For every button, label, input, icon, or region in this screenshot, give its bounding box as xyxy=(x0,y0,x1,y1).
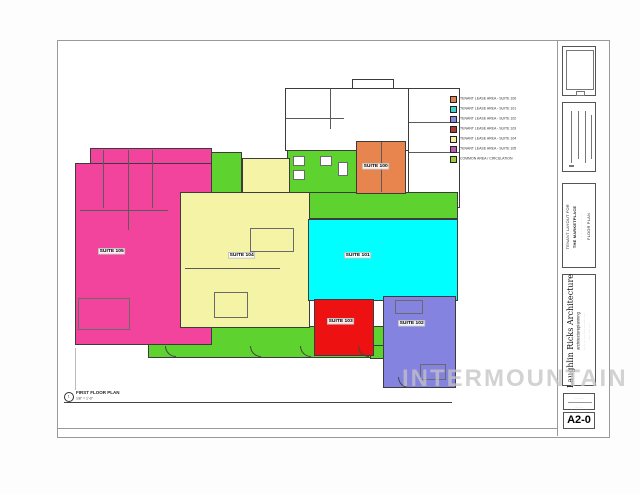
screenshot-root: SUITE 100 SUITE 101 SUITE 102 SUITE 103 … xyxy=(0,0,640,494)
restroom-fixture xyxy=(293,170,305,180)
firm-tagline: architectureplanning xyxy=(577,312,581,350)
rotated-text-line xyxy=(578,111,579,159)
drawing-title: FIRST FLOOR PLAN xyxy=(76,391,120,396)
consultant-info-box xyxy=(562,102,596,172)
legend-row: TENANT LEASE AREA - SUITE 104 xyxy=(450,134,555,144)
legend-label: COMMON AREA / CIRCULATION xyxy=(460,157,513,160)
legend-swatch-suite-100 xyxy=(450,96,457,103)
wall-line xyxy=(250,228,294,252)
job-info-line-1: ······ · ·· xyxy=(572,397,587,400)
legend-row: TENANT LEASE AREA - SUITE 101 xyxy=(450,104,555,114)
project-line-4: FLOOR PLAN xyxy=(587,213,592,240)
wall-line xyxy=(286,118,344,119)
project-line-2: THE MARKETPLACE xyxy=(573,205,578,247)
wall-line xyxy=(80,210,168,211)
legend-label: TENANT LEASE AREA - SUITE 104 xyxy=(460,137,516,140)
legend-label: TENANT LEASE AREA - SUITE 102 xyxy=(460,117,516,120)
drawing-scale: 1/8" = 1'-0" xyxy=(76,397,93,400)
project-title-rotated: TENANT LAYOUT FOR THE MARKETPLACE · · · … xyxy=(563,184,595,269)
rotated-text-line xyxy=(591,115,592,159)
drawing-title-underline xyxy=(64,402,452,403)
firm-phone: ····· ····· ····· xyxy=(588,323,591,340)
lease-line xyxy=(75,348,76,390)
wall-line xyxy=(214,292,248,318)
legend-swatch-suite-102 xyxy=(450,116,457,123)
legend-label: TENANT LEASE AREA - SUITE 100 xyxy=(460,97,516,100)
suite-103-label: SUITE 103 xyxy=(327,318,354,325)
legend-label: TENANT LEASE AREA - SUITE 105 xyxy=(460,147,516,150)
legend-swatch-suite-103 xyxy=(450,126,457,133)
rotated-text-mark xyxy=(569,165,574,167)
job-info-line-2: ···· ··· xyxy=(572,406,587,409)
wall-line xyxy=(78,298,130,330)
suite-102-label: SUITE 102 xyxy=(398,320,425,327)
project-title-box: TENANT LAYOUT FOR THE MARKETPLACE · · · … xyxy=(562,183,596,268)
job-info-divider xyxy=(568,402,592,403)
suite-105-label: SUITE 105 xyxy=(98,248,125,255)
sheet-number: A2-0 xyxy=(564,413,594,428)
seal-inner-outline xyxy=(566,50,594,90)
legend-swatch-suite-105 xyxy=(450,146,457,153)
project-line-3: · · · · · · · · · · xyxy=(580,213,585,240)
common-area-band xyxy=(305,192,458,219)
legend-label: TENANT LEASE AREA - SUITE 103 xyxy=(460,127,516,130)
floor-plan: SUITE 100 SUITE 101 SUITE 102 SUITE 103 … xyxy=(0,0,640,494)
legend-row: TENANT LEASE AREA - SUITE 103 xyxy=(450,124,555,134)
legend-row: COMMON AREA / CIRCULATION xyxy=(450,154,555,164)
restroom-fixture xyxy=(320,156,332,166)
rotated-text-line xyxy=(585,111,586,163)
drawing-number: 1 xyxy=(68,395,70,399)
watermark-text: INTERMOUNTAIN xyxy=(402,365,628,393)
legend-row: TENANT LEASE AREA - SUITE 102 xyxy=(450,114,555,124)
project-line-1: TENANT LAYOUT FOR xyxy=(566,204,571,249)
legend-swatch-suite-104 xyxy=(450,136,457,143)
wall-line xyxy=(128,150,129,230)
job-info-box: ······ · ·· ···· ··· xyxy=(563,393,595,410)
suite-104-label: SUITE 104 xyxy=(228,252,255,259)
suite-101-label: SUITE 101 xyxy=(344,252,371,259)
legend-row: TENANT LEASE AREA - SUITE 100 xyxy=(450,94,555,104)
suite-100-label: SUITE 100 xyxy=(362,163,389,170)
wall-line xyxy=(103,150,104,208)
legend-swatch-common xyxy=(450,156,457,163)
legend-row: TENANT LEASE AREA - SUITE 105 xyxy=(450,144,555,154)
seal-tab xyxy=(576,91,585,96)
wall-line xyxy=(395,300,423,314)
wall-line xyxy=(152,150,153,208)
wall-line xyxy=(330,89,331,129)
sheet-number-box: A2-0 xyxy=(563,412,595,429)
restroom-fixture xyxy=(293,156,305,166)
wall-line xyxy=(185,268,280,269)
rotated-text-line xyxy=(571,111,572,163)
suite-101-area xyxy=(308,219,458,301)
legend-label: TENANT LEASE AREA - SUITE 101 xyxy=(460,107,516,110)
legend-swatch-suite-101 xyxy=(450,106,457,113)
firm-address: ··· ·· ··· ···· ····· ····· ···· ····· xyxy=(583,313,586,350)
restroom-fixture xyxy=(338,162,348,176)
color-legend: TENANT LEASE AREA - SUITE 100 TENANT LEA… xyxy=(450,94,555,164)
architect-seal-box xyxy=(562,46,596,96)
unshaded-room-notch xyxy=(352,79,394,89)
drawing-number-bubble: 1 xyxy=(64,392,74,402)
